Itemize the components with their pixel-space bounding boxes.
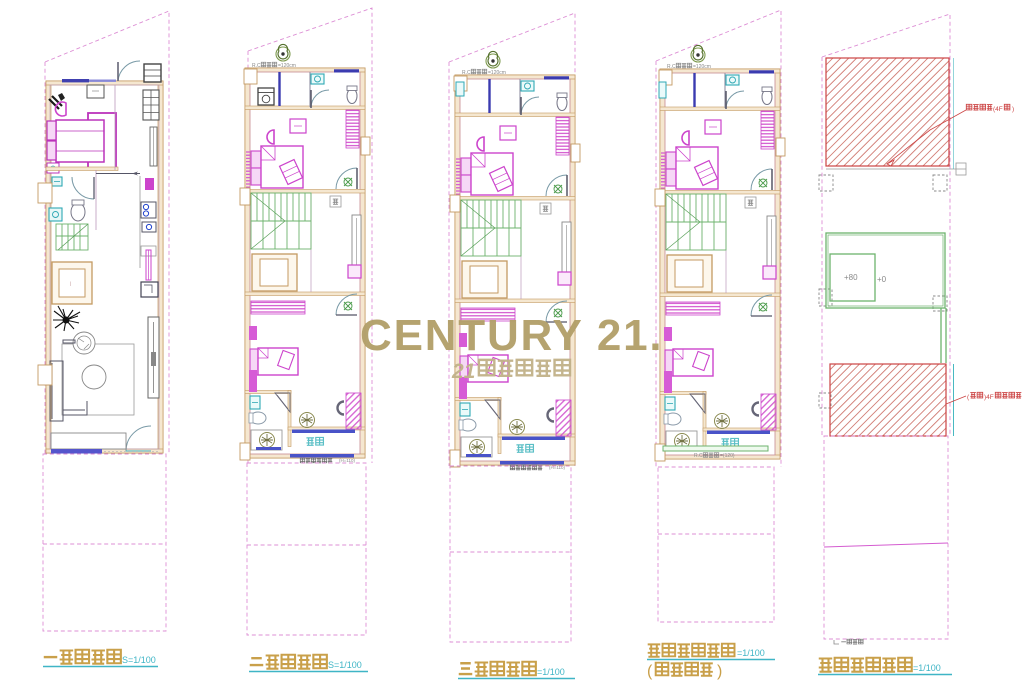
svg-text:S=1/100: S=1/100 <box>122 655 156 665</box>
svg-text:(: ( <box>967 394 970 401</box>
svg-text:=1/100: =1/100 <box>537 667 565 677</box>
svg-text:+0: +0 <box>877 275 887 284</box>
svg-text:R.C: R.C <box>694 453 703 459</box>
svg-text:): ) <box>1012 106 1014 113</box>
svg-text:CENTURY 21.: CENTURY 21. <box>360 311 663 360</box>
svg-text:(H=110): (H=110) <box>549 465 566 470</box>
svg-text:): ) <box>717 663 722 680</box>
svg-text:21: 21 <box>451 360 475 383</box>
svg-text:(4F: (4F <box>993 106 1003 113</box>
svg-text:(H=110): (H=110) <box>339 458 356 463</box>
svg-text:)4F: )4F <box>984 394 994 401</box>
svg-text:+80: +80 <box>844 273 858 282</box>
svg-text:=(120): =(120) <box>720 453 735 459</box>
svg-text:S=1/100: S=1/100 <box>328 660 362 670</box>
svg-text:=1/100: =1/100 <box>913 663 941 673</box>
svg-text:(: ( <box>647 663 653 680</box>
svg-text:=1/100: =1/100 <box>737 648 765 658</box>
svg-text:l: l <box>70 282 71 288</box>
